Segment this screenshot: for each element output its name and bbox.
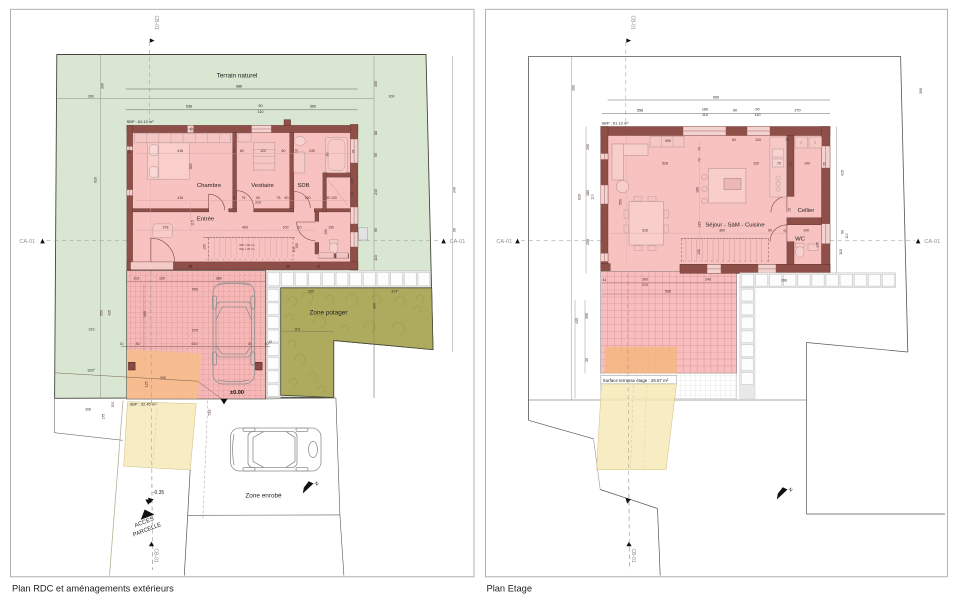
svg-text:200: 200 bbox=[586, 144, 590, 150]
svg-text:316: 316 bbox=[642, 229, 648, 233]
svg-text:10: 10 bbox=[789, 162, 793, 166]
svg-text:10: 10 bbox=[783, 229, 787, 233]
svg-text:596: 596 bbox=[665, 290, 671, 294]
svg-text:10: 10 bbox=[232, 149, 236, 153]
svg-text:620: 620 bbox=[94, 177, 98, 183]
svg-text:115: 115 bbox=[374, 255, 378, 261]
svg-text:55: 55 bbox=[374, 153, 378, 157]
svg-text:319: 319 bbox=[89, 328, 95, 332]
svg-text:36: 36 bbox=[189, 265, 193, 269]
svg-text:CB-01: CB-01 bbox=[153, 16, 159, 30]
svg-text:175: 175 bbox=[101, 414, 105, 420]
svg-text:CB-01: CB-01 bbox=[152, 549, 158, 563]
svg-text:100: 100 bbox=[202, 244, 206, 250]
svg-text:30: 30 bbox=[136, 342, 140, 346]
svg-text:CB-01: CB-01 bbox=[630, 549, 636, 563]
svg-text:300: 300 bbox=[100, 83, 104, 89]
svg-text:115: 115 bbox=[190, 220, 194, 226]
svg-text:115: 115 bbox=[839, 249, 843, 255]
svg-text:41: 41 bbox=[603, 278, 607, 282]
svg-text:570: 570 bbox=[192, 329, 198, 333]
svg-text:130: 130 bbox=[305, 196, 311, 200]
svg-text:125: 125 bbox=[145, 382, 149, 388]
svg-text:270: 270 bbox=[794, 109, 800, 113]
svg-text:125: 125 bbox=[698, 222, 702, 228]
svg-text:110: 110 bbox=[702, 113, 708, 117]
svg-text:620: 620 bbox=[577, 194, 581, 200]
svg-text:-0.35: -0.35 bbox=[153, 490, 165, 496]
svg-text:590: 590 bbox=[192, 287, 198, 291]
svg-text:90: 90 bbox=[256, 196, 260, 200]
svg-text:Plan Etage: Plan Etage bbox=[487, 583, 533, 593]
svg-text:Surface terrasse étage : 25.67: Surface terrasse étage : 25.67 m² bbox=[603, 378, 669, 383]
svg-text:30: 30 bbox=[326, 153, 330, 157]
svg-text:558: 558 bbox=[637, 109, 643, 113]
svg-text:200: 200 bbox=[586, 239, 590, 245]
svg-text:240: 240 bbox=[309, 149, 315, 153]
svg-text:395: 395 bbox=[143, 311, 147, 317]
svg-text:536: 536 bbox=[186, 105, 192, 109]
svg-text:70: 70 bbox=[785, 138, 789, 142]
svg-text:90: 90 bbox=[768, 229, 772, 233]
svg-text:249: 249 bbox=[705, 277, 711, 281]
svg-text:c: c bbox=[800, 141, 802, 145]
svg-text:300: 300 bbox=[642, 277, 648, 281]
svg-text:389: 389 bbox=[216, 276, 222, 280]
svg-text:105: 105 bbox=[295, 243, 299, 249]
svg-text:120: 120 bbox=[755, 138, 761, 142]
svg-text:325: 325 bbox=[189, 164, 193, 170]
svg-text:190: 190 bbox=[324, 229, 328, 235]
svg-text:35: 35 bbox=[189, 127, 193, 131]
svg-text:110: 110 bbox=[754, 113, 760, 117]
svg-text:120: 120 bbox=[753, 162, 759, 166]
svg-text:Séjour - SàM - Cuisine: Séjour - SàM - Cuisine bbox=[705, 222, 765, 228]
svg-text:510: 510 bbox=[192, 342, 198, 346]
svg-text:90: 90 bbox=[733, 109, 737, 113]
svg-text:90: 90 bbox=[452, 228, 456, 232]
svg-text:130: 130 bbox=[328, 225, 334, 229]
svg-text:60: 60 bbox=[240, 149, 244, 153]
svg-text:986: 986 bbox=[236, 85, 242, 89]
svg-text:±0.00: ±0.00 bbox=[230, 390, 244, 396]
svg-text:10: 10 bbox=[350, 192, 354, 196]
svg-text:300: 300 bbox=[373, 303, 377, 309]
svg-text:101: 101 bbox=[134, 276, 140, 280]
svg-text:140: 140 bbox=[804, 162, 810, 166]
svg-text:90: 90 bbox=[841, 230, 845, 234]
svg-text:50: 50 bbox=[285, 196, 289, 200]
svg-text:35: 35 bbox=[823, 162, 827, 166]
svg-text:c: c bbox=[814, 141, 816, 145]
svg-text:Cellier: Cellier bbox=[798, 208, 815, 214]
svg-text:10: 10 bbox=[298, 225, 302, 229]
svg-text:90: 90 bbox=[258, 104, 262, 108]
svg-text:300: 300 bbox=[389, 94, 395, 98]
svg-text:240: 240 bbox=[452, 187, 456, 193]
svg-text:50g x 25 cm: 50g x 25 cm bbox=[239, 247, 255, 251]
svg-text:395: 395 bbox=[585, 313, 589, 319]
svg-text:130: 130 bbox=[350, 178, 354, 184]
svg-text:75: 75 bbox=[242, 196, 246, 200]
svg-text:160: 160 bbox=[702, 108, 708, 112]
svg-text:400: 400 bbox=[242, 225, 248, 229]
svg-text:12: 12 bbox=[317, 265, 321, 269]
svg-text:140: 140 bbox=[803, 229, 809, 233]
svg-text:Plan RDC et aménagements extér: Plan RDC et aménagements extérieurs bbox=[12, 583, 174, 593]
svg-text:Zone enrobé: Zone enrobé bbox=[245, 493, 282, 500]
svg-text:415: 415 bbox=[841, 170, 845, 176]
svg-text:324°: 324° bbox=[391, 290, 399, 294]
svg-text:300: 300 bbox=[571, 85, 575, 91]
svg-text:10: 10 bbox=[265, 342, 269, 346]
svg-text:SBP : 32.45 m²: SBP : 32.45 m² bbox=[130, 401, 158, 406]
svg-text:395: 395 bbox=[308, 290, 314, 294]
svg-text:Zone potager: Zone potager bbox=[309, 310, 348, 317]
svg-text:100: 100 bbox=[159, 276, 165, 280]
svg-text:360: 360 bbox=[719, 229, 725, 233]
svg-text:300: 300 bbox=[88, 94, 94, 98]
svg-text:110: 110 bbox=[845, 233, 849, 239]
svg-text:180: 180 bbox=[586, 190, 590, 196]
svg-text:36: 36 bbox=[286, 265, 290, 269]
svg-text:110: 110 bbox=[591, 194, 595, 200]
svg-text:550: 550 bbox=[618, 199, 622, 205]
svg-text:10: 10 bbox=[788, 208, 792, 212]
svg-text:CA-01: CA-01 bbox=[924, 239, 940, 245]
svg-text:300: 300 bbox=[919, 88, 923, 94]
svg-text:60: 60 bbox=[282, 149, 286, 153]
svg-text:100: 100 bbox=[283, 225, 289, 229]
svg-text:CB-01: CB-01 bbox=[629, 16, 635, 30]
svg-text:Vestiaire: Vestiaire bbox=[251, 183, 274, 189]
svg-text:210: 210 bbox=[255, 201, 261, 205]
svg-text:300: 300 bbox=[374, 81, 378, 87]
svg-text:75: 75 bbox=[277, 196, 281, 200]
svg-text:10: 10 bbox=[120, 342, 124, 346]
svg-text:30: 30 bbox=[585, 358, 589, 362]
svg-text:35: 35 bbox=[352, 150, 356, 154]
svg-text:308: 308 bbox=[85, 408, 91, 412]
svg-text:180: 180 bbox=[696, 187, 700, 193]
svg-text:SDB: SDB bbox=[297, 183, 309, 189]
svg-text:210: 210 bbox=[642, 283, 648, 287]
svg-text:425: 425 bbox=[107, 310, 111, 316]
svg-text:240: 240 bbox=[374, 189, 378, 195]
svg-text:10: 10 bbox=[295, 149, 299, 153]
svg-text:120: 120 bbox=[260, 149, 266, 153]
svg-text:90: 90 bbox=[755, 108, 759, 112]
svg-text:301: 301 bbox=[295, 327, 301, 331]
svg-text:90: 90 bbox=[374, 228, 378, 232]
svg-text:396: 396 bbox=[781, 279, 787, 283]
svg-text:CA-01: CA-01 bbox=[450, 239, 466, 245]
svg-text:518: 518 bbox=[207, 410, 211, 416]
svg-text:Chambre: Chambre bbox=[197, 183, 222, 189]
svg-text:110: 110 bbox=[257, 110, 263, 114]
svg-text:416: 416 bbox=[177, 149, 183, 153]
svg-text:278: 278 bbox=[163, 225, 169, 229]
svg-text:CA-01: CA-01 bbox=[496, 239, 512, 245]
svg-text:10: 10 bbox=[268, 340, 272, 344]
svg-text:145: 145 bbox=[816, 242, 820, 248]
svg-text:CA-01: CA-01 bbox=[19, 239, 35, 245]
svg-text:390: 390 bbox=[160, 376, 166, 380]
svg-text:SBP : 61.13 m²: SBP : 61.13 m² bbox=[127, 119, 155, 124]
svg-text:360: 360 bbox=[310, 105, 316, 109]
svg-text:60: 60 bbox=[732, 138, 736, 142]
svg-text:300: 300 bbox=[111, 402, 115, 408]
svg-text:416: 416 bbox=[177, 196, 183, 200]
svg-text:Entrée: Entrée bbox=[197, 216, 215, 222]
svg-text:70: 70 bbox=[777, 162, 781, 166]
svg-text:WC: WC bbox=[795, 237, 806, 243]
svg-text:528: 528 bbox=[662, 162, 668, 166]
svg-text:900: 900 bbox=[713, 95, 719, 99]
svg-text:595: 595 bbox=[665, 139, 671, 143]
svg-text:30 100: 30 100 bbox=[326, 196, 337, 200]
svg-text:550: 550 bbox=[99, 310, 103, 316]
svg-text:88: 88 bbox=[374, 131, 378, 135]
svg-text:435: 435 bbox=[575, 318, 579, 324]
svg-text:SBP : 61.13 m²: SBP : 61.13 m² bbox=[602, 120, 630, 125]
svg-text:105: 105 bbox=[697, 249, 701, 255]
svg-text:10: 10 bbox=[232, 196, 236, 200]
svg-text:35: 35 bbox=[127, 150, 131, 154]
svg-text:320°: 320° bbox=[87, 368, 95, 372]
svg-text:Terrain naturel: Terrain naturel bbox=[217, 73, 258, 80]
